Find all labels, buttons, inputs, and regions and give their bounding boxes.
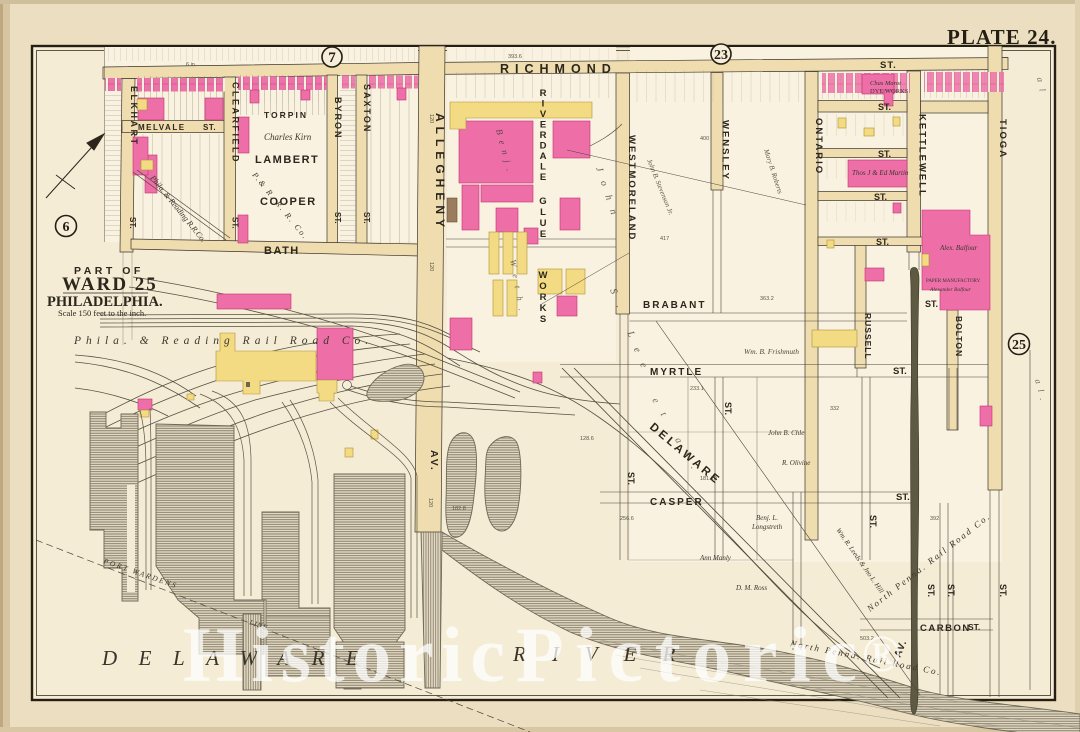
svg-text:CARBON: CARBON [920, 623, 971, 634]
svg-text:Chas Marot: Chas Marot [870, 80, 901, 87]
svg-text:A: A [540, 151, 547, 162]
svg-text:O: O [539, 281, 546, 292]
svg-text:RICHMOND: RICHMOND [500, 62, 617, 76]
svg-text:Wm. B. Frishmuth: Wm. B. Frishmuth [744, 347, 799, 356]
svg-text:ST.: ST. [896, 492, 910, 503]
svg-text:417: 417 [660, 236, 669, 242]
svg-text:TORPIN: TORPIN [264, 110, 308, 120]
svg-text:392: 392 [930, 516, 939, 522]
svg-text:ALLEGHENY: ALLEGHENY [433, 113, 447, 232]
svg-text:SAXTON: SAXTON [362, 84, 372, 133]
svg-text:Longstreth: Longstreth [751, 523, 783, 531]
svg-text:Alex. Balfour: Alex. Balfour [939, 244, 978, 252]
svg-text:KETTLEWELL: KETTLEWELL [917, 114, 928, 198]
svg-text:WESTMORELAND: WESTMORELAND [626, 135, 637, 241]
svg-text:ST.: ST. [926, 584, 936, 597]
svg-text:BRABANT: BRABANT [643, 300, 706, 311]
svg-text:L: L [540, 207, 546, 218]
svg-text:Scale 150 feet to the inch.: Scale 150 feet to the inch. [58, 308, 146, 318]
svg-text:CASPER: CASPER [650, 497, 704, 508]
svg-text:Benj. L.: Benj. L. [756, 514, 778, 522]
svg-text:400: 400 [700, 136, 709, 142]
svg-text:ST.: ST. [874, 192, 887, 202]
svg-text:R. Olivine: R. Olivine [781, 459, 810, 467]
svg-text:Alexander Balfour: Alexander Balfour [929, 286, 972, 293]
svg-text:ONTARIO: ONTARIO [813, 118, 824, 175]
svg-text:ST.: ST. [231, 217, 240, 229]
svg-text:R: R [540, 88, 547, 99]
svg-text:W: W [539, 270, 548, 281]
svg-text:U: U [540, 218, 547, 229]
svg-text:256.6: 256.6 [620, 516, 634, 522]
svg-text:TIOGA: TIOGA [997, 119, 1008, 159]
svg-text:BATH: BATH [264, 245, 300, 257]
svg-text:ST.: ST. [878, 149, 891, 159]
svg-text:332: 332 [830, 406, 839, 412]
svg-text:25: 25 [1012, 338, 1026, 353]
svg-text:AV.: AV. [428, 450, 440, 472]
svg-text:ST.: ST. [880, 60, 897, 71]
svg-text:D. M. Ross: D. M. Ross [735, 584, 767, 592]
svg-text:E: E [540, 120, 546, 131]
svg-text:6: 6 [63, 220, 70, 235]
svg-text:120: 120 [428, 262, 434, 271]
svg-text:Ann Manly: Ann Manly [699, 554, 732, 562]
svg-text:BYRON: BYRON [333, 97, 343, 140]
svg-text:ST.: ST. [893, 366, 907, 377]
svg-text:R: R [540, 130, 547, 141]
svg-text:Historic: Historic [183, 611, 505, 698]
svg-text:E: E [540, 229, 546, 240]
svg-text:ST.: ST. [876, 237, 889, 247]
svg-text:ST.: ST. [128, 217, 137, 229]
svg-text:Phila. & Reading Rail Road Co.: Phila. & Reading Rail Road Co. [73, 335, 373, 347]
svg-text:L: L [540, 162, 546, 173]
svg-text:R: R [540, 292, 547, 303]
svg-text:I: I [542, 99, 545, 110]
svg-text:LAMBERT: LAMBERT [255, 154, 319, 166]
svg-text:ST.: ST. [362, 212, 371, 224]
svg-text:®: ® [862, 626, 901, 683]
svg-text:182.8: 182.8 [452, 506, 466, 512]
svg-text:DYE WORKS: DYE WORKS [870, 88, 909, 95]
svg-text:CLEARFIELD: CLEARFIELD [231, 82, 241, 164]
svg-text:D: D [540, 141, 547, 152]
svg-text:ST.: ST. [968, 622, 980, 632]
svg-text:393.6: 393.6 [508, 54, 522, 60]
svg-text:E: E [540, 172, 546, 183]
svg-text:ST.: ST. [946, 584, 956, 597]
svg-text:ST.: ST. [998, 584, 1008, 597]
svg-text:ST.: ST. [333, 212, 342, 224]
svg-text:K: K [540, 303, 547, 314]
svg-text:MYRTLE: MYRTLE [650, 367, 703, 378]
svg-text:ST.: ST. [203, 123, 216, 132]
svg-text:6 in.: 6 in. [186, 62, 197, 68]
svg-text:ELKHART: ELKHART [129, 86, 139, 147]
svg-text:Charles Kirn: Charles Kirn [264, 132, 312, 142]
svg-text:ST.: ST. [878, 102, 891, 112]
svg-text:PAPER MANUFACTORY: PAPER MANUFACTORY [926, 279, 981, 284]
svg-text:120: 120 [428, 114, 434, 123]
svg-text:ST.: ST. [925, 299, 938, 309]
svg-text:MELVALE: MELVALE [138, 123, 186, 132]
svg-text:128.6: 128.6 [580, 436, 594, 442]
svg-text:WENSLEY: WENSLEY [720, 120, 731, 181]
svg-text:V: V [540, 109, 547, 120]
svg-text:120: 120 [427, 498, 433, 507]
svg-text:BOLTON: BOLTON [954, 316, 964, 357]
svg-text:RUSSELL: RUSSELL [863, 313, 873, 360]
svg-text:Thos J & Ed Martin: Thos J & Ed Martin [852, 169, 909, 177]
svg-text:363.2: 363.2 [760, 296, 774, 302]
svg-text:PLATE 24.: PLATE 24. [947, 25, 1057, 49]
svg-text:ST.: ST. [626, 472, 636, 485]
svg-text:ST.: ST. [723, 402, 733, 415]
svg-text:7: 7 [328, 50, 336, 66]
svg-text:G: G [539, 196, 546, 207]
svg-text:WARD 25: WARD 25 [62, 274, 158, 295]
svg-text:23: 23 [714, 48, 728, 63]
svg-text:S: S [540, 314, 546, 325]
svg-text:233.1: 233.1 [690, 386, 704, 392]
svg-text:ST.: ST. [868, 515, 878, 528]
svg-text:John B. Chle: John B. Chle [768, 429, 804, 437]
